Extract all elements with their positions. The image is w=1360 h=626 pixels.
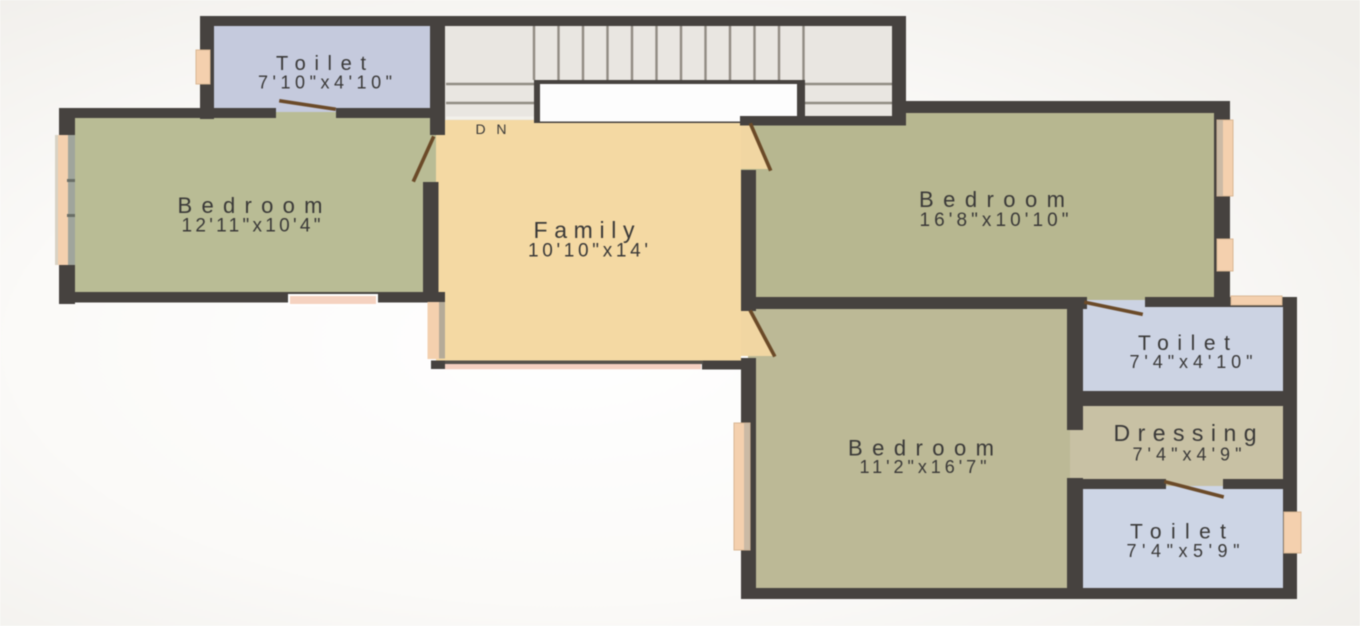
svg-text:11'2"x16'7": 11'2"x16'7" <box>860 457 987 477</box>
svg-text:7'4"x4'9": 7'4"x4'9" <box>1133 445 1242 465</box>
svg-text:10'10"x14': 10'10"x14' <box>528 241 648 262</box>
svg-text:7'4"x5'9": 7'4"x5'9" <box>1127 541 1240 561</box>
